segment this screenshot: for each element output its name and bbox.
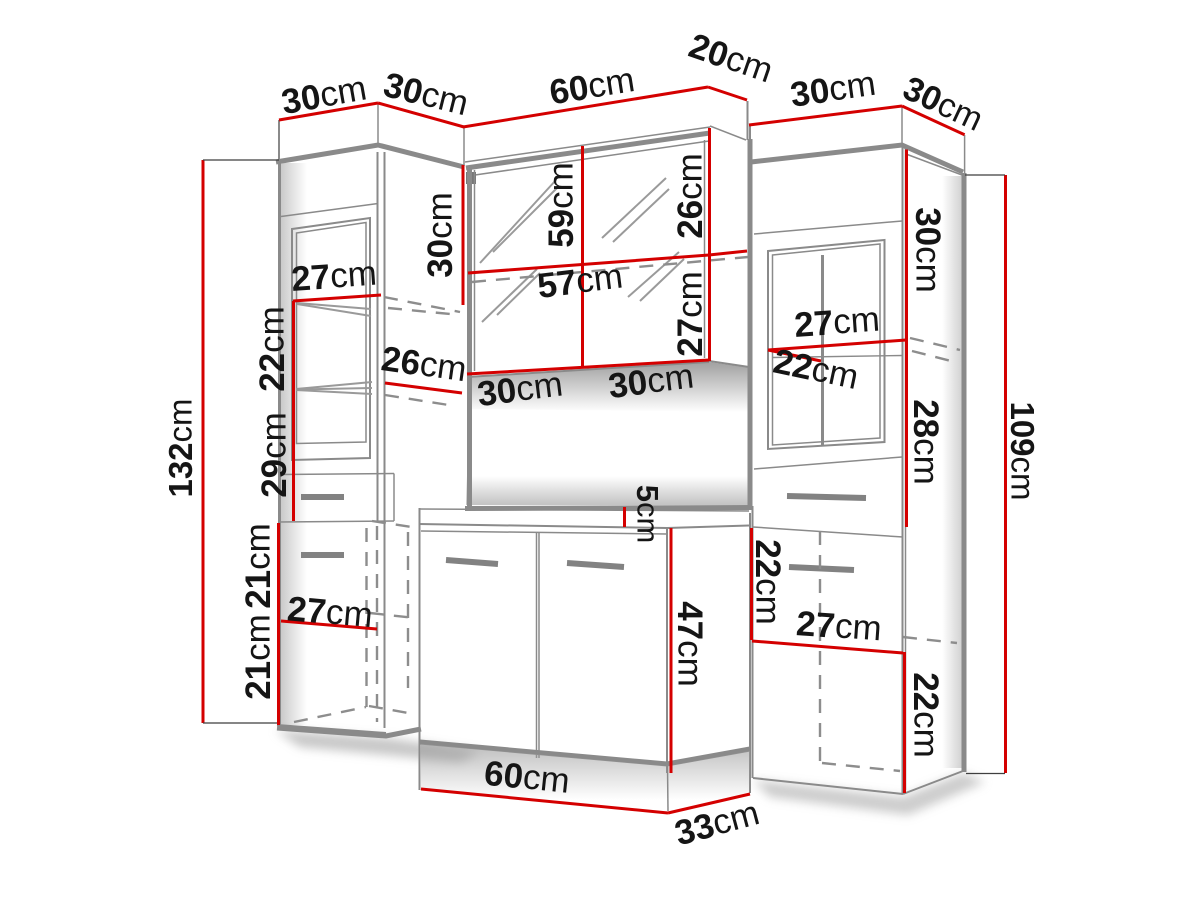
svg-text:22cm: 22cm: [253, 306, 292, 392]
svg-text:132cm: 132cm: [162, 398, 199, 497]
svg-text:28cm: 28cm: [907, 399, 946, 485]
svg-text:30cm: 30cm: [421, 192, 460, 278]
svg-text:47cm: 47cm: [671, 601, 710, 687]
svg-text:27cm: 27cm: [793, 300, 881, 345]
svg-text:27cm: 27cm: [286, 589, 375, 635]
svg-text:22cm: 22cm: [907, 672, 946, 758]
svg-text:27cm: 27cm: [671, 271, 710, 357]
svg-text:59cm: 59cm: [542, 162, 581, 248]
svg-text:5cm: 5cm: [631, 485, 666, 544]
svg-text:26cm: 26cm: [671, 153, 710, 239]
svg-text:30cm: 30cm: [909, 207, 948, 293]
svg-text:27cm: 27cm: [290, 254, 378, 299]
svg-text:27cm: 27cm: [795, 604, 883, 649]
svg-text:21cm: 21cm: [239, 614, 278, 700]
svg-text:21cm: 21cm: [239, 523, 278, 609]
svg-text:22cm: 22cm: [749, 539, 788, 625]
svg-text:29cm: 29cm: [255, 412, 294, 498]
svg-text:109cm: 109cm: [1005, 401, 1042, 500]
